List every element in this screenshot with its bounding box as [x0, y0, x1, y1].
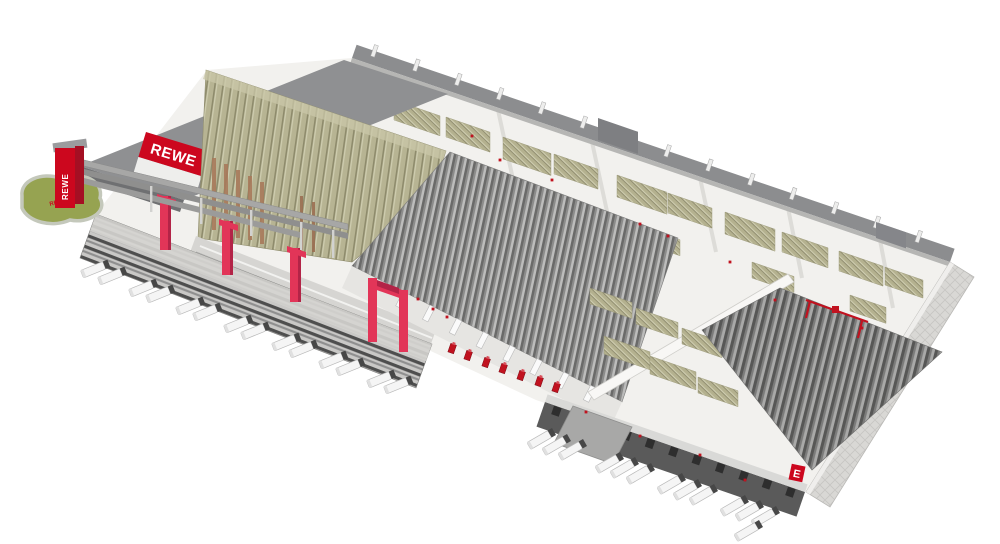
warehouse-3d-rendering: REWE — [0, 0, 1000, 544]
rewe-pylon: REWE — [52, 139, 87, 208]
pylon-rewe-text: REWE — [61, 174, 70, 200]
